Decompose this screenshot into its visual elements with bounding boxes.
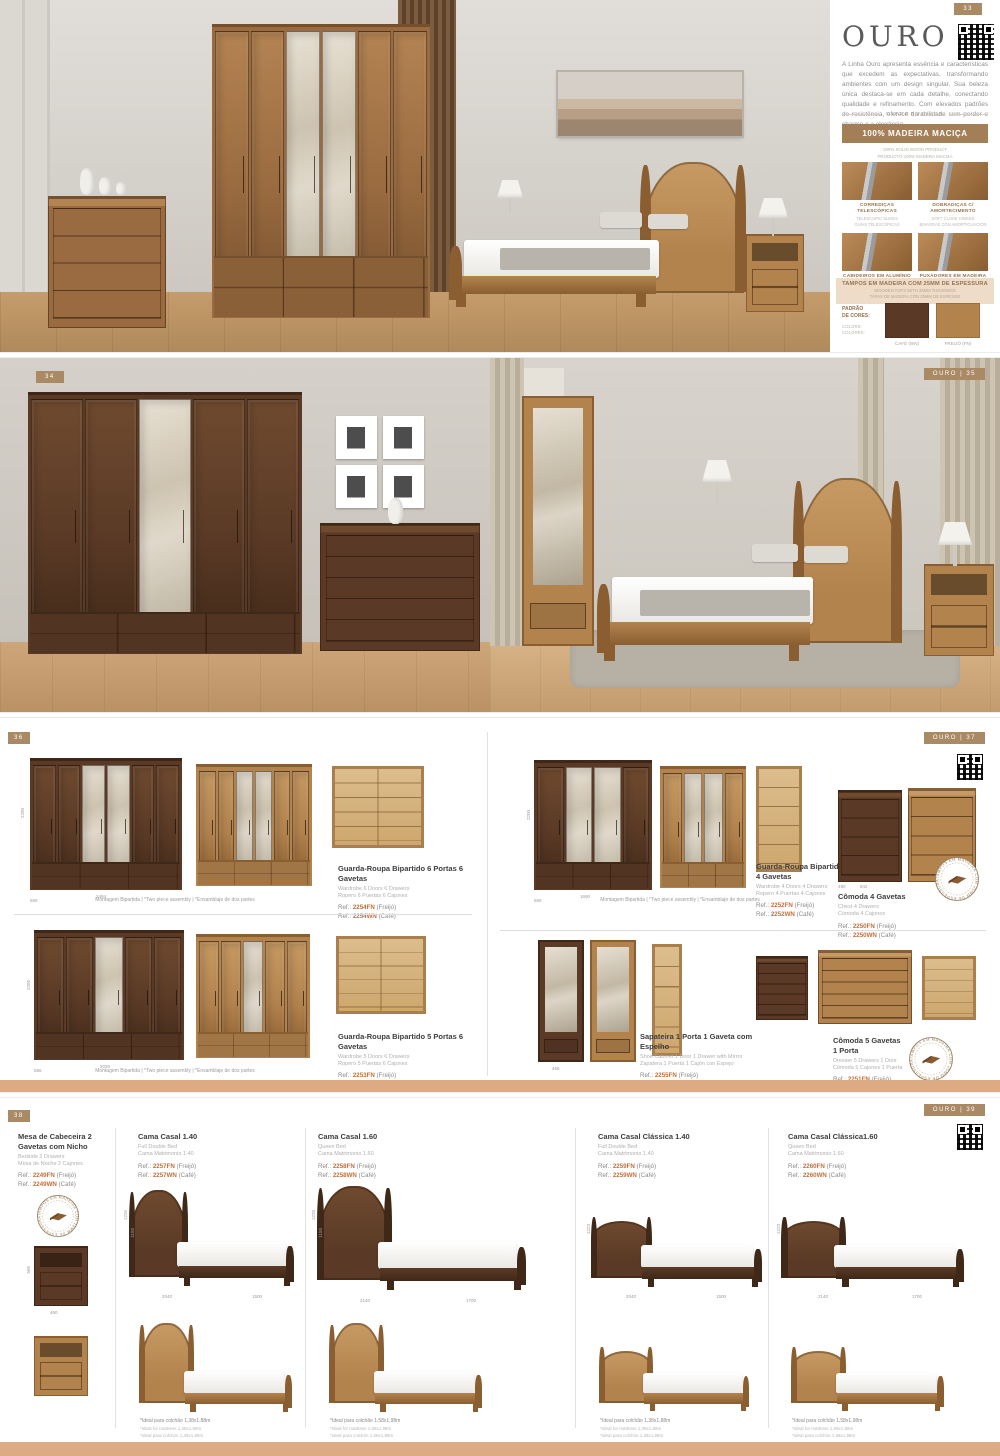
swatch-cafe-label: CAFÉ (WN) [885, 341, 929, 346]
dresser-5-drawer-freijo [818, 950, 912, 1024]
solid-wood-subtitle: 100% SOLID WOOD PRODUCTPRODUCTO 100% MAD… [842, 147, 988, 160]
mattress-footnote: *Ideal para colchão 1,38x1,88m *Ideal fo… [600, 1418, 670, 1439]
bedroom-photo-2 [0, 358, 490, 712]
dim-width: 1500 [716, 1294, 726, 1299]
product-card: Cômoda 4 Gavetas Chest 4 DrawersCómoda 4… [838, 892, 930, 941]
column-divider [768, 1128, 769, 1428]
dim-depth: 465 [552, 1066, 560, 1071]
bed-illustration [452, 162, 744, 312]
page-number-badge: 34 [36, 371, 64, 383]
swatch-cafe[interactable] [885, 303, 929, 338]
chest-of-drawers-illustration [48, 196, 166, 328]
swatch-freijo[interactable] [936, 303, 980, 338]
bed-160-cafe [318, 1186, 524, 1294]
dim-length: 2040 [626, 1294, 636, 1299]
dresser-interior-view [922, 956, 976, 1020]
dim-height: 1150 [130, 1228, 135, 1238]
dim-height: 1225 [311, 1210, 316, 1220]
color-pattern-label-intl: COLORS: COLORES: [842, 324, 865, 336]
dim-height: 1150 [318, 1228, 323, 1238]
dim-width: 1700 [912, 1294, 922, 1299]
wardrobe-5-door-freijo [196, 934, 310, 1058]
dim-width: 1700 [466, 1298, 476, 1303]
wardrobe-6-door-cafe [30, 758, 182, 890]
product-title: Cômoda 4 Gavetas [838, 892, 930, 902]
dim-height: 565 [26, 1266, 31, 1274]
column-divider [305, 1128, 306, 1428]
feature-photo [918, 162, 988, 200]
column-divider [115, 1128, 116, 1428]
vase [80, 168, 94, 195]
dim-length: 2140 [360, 1298, 370, 1303]
collection-description: A Linha Ouro apresenta essência e caract… [842, 60, 988, 129]
nightstand-illustration [746, 234, 804, 312]
bed-illustration [600, 478, 900, 668]
products-panel-wardrobes: 36 OURO | 37 2200 2494 555 Guarda-Roupa … [0, 718, 1000, 1092]
accent-strip [0, 1442, 1000, 1456]
product-title: Cama Casal 1.40 [138, 1132, 288, 1142]
bedroom-photo-1 [0, 0, 830, 352]
product-card: Cama Casal 1.60 Queen BedCama Matrimonio… [318, 1132, 478, 1181]
dim-length: 2040 [162, 1294, 172, 1299]
product-title: Guarda-Roupa Bipartido 5 Portas 6 Gaveta… [338, 1032, 470, 1052]
wainscot-wall [0, 0, 50, 292]
dim-width: 842 [860, 884, 868, 889]
shoe-cabinet-illustration [522, 396, 594, 646]
shoe-cabinet-freijo [590, 940, 636, 1062]
pillow [752, 544, 798, 562]
column-divider [575, 1128, 576, 1428]
bedroom-photo-3 [490, 358, 1000, 712]
shoe-cabinet-cafe [538, 940, 584, 1062]
dark-chest-illustration [320, 523, 480, 651]
wood-top-seal: TAMPOS EM MADEIRA COM 25MM DE ESPESSURA … [908, 1036, 954, 1082]
table-lamp [497, 180, 523, 214]
feature-photo [842, 233, 912, 271]
feature-soft-close-hinges: DOBRADIÇAS C/ AMORTECIMENTO SOFT CLOSE H… [918, 162, 988, 227]
nightstand-illustration [924, 564, 994, 656]
vase [99, 177, 111, 195]
bed-classic-160-freijo [792, 1328, 942, 1414]
page-number-badge: 36 [8, 732, 30, 744]
swatch-freijo-label: FREIJÓ (FN) [936, 341, 980, 346]
nightstand-cafe [34, 1246, 88, 1306]
dim-height: 2200 [26, 980, 31, 990]
bed-140-freijo [140, 1323, 290, 1415]
collection-title: OURO [842, 20, 949, 53]
wardrobe-interior-view [336, 936, 426, 1014]
dim-height: 1223 [776, 1224, 781, 1234]
qr-code[interactable] [958, 24, 994, 60]
vase [388, 498, 403, 524]
hero-panel: OURO A Linha Ouro apresenta essência e c… [0, 0, 1000, 352]
mattress-footnote: *Ideal para colchão 1,38x1,88m *Ideal fo… [140, 1418, 210, 1439]
solid-wood-banner: 100% MADEIRA MACIÇA [842, 124, 988, 143]
dim-height: 2200 [526, 810, 531, 820]
table-lamp [758, 198, 788, 236]
page-number-badge: OURO | 39 [924, 1104, 985, 1116]
mattress-footnote: *Ideal para colchão 1,58x1,98m *Ideal fo… [792, 1418, 862, 1439]
assembly-note: Montagem Bipartida | *Two piece assembly… [30, 897, 320, 903]
bed-classic-160-cafe [782, 1196, 962, 1290]
wardrobe-4-door-freijo [660, 766, 746, 888]
row-divider [500, 930, 986, 931]
accent-strip [0, 1080, 1000, 1092]
bed-160-freijo [330, 1323, 480, 1415]
wardrobe-4-door-cafe [534, 760, 652, 890]
product-title: Cama Casal Clássica1.60 [788, 1132, 958, 1142]
pillow [648, 214, 688, 229]
wardrobe-6-door-freijo [196, 764, 312, 886]
dim-depth: 490 [838, 884, 846, 889]
dim-width: 460 [50, 1310, 58, 1315]
differentials-divider: DIFERENCIAIS [842, 112, 988, 117]
bed-classic-140-freijo [600, 1328, 748, 1414]
wardrobe-interior-view [756, 766, 802, 872]
bed-throw [640, 590, 810, 616]
product-title: Mesa de Cabeceira 2 Gavetas com Nicho [18, 1132, 110, 1152]
table-lamp [938, 522, 972, 566]
vase [116, 182, 126, 195]
nightstand-freijo [34, 1336, 88, 1396]
wardrobe-5-door-cafe [34, 930, 184, 1060]
assembly-note: Montagem Bipartida | *Two piece assembly… [530, 897, 830, 903]
wardrobe-interior-view [332, 766, 424, 848]
column-divider [487, 732, 488, 1076]
page-number-badge: OURO | 37 [924, 732, 985, 744]
dim-height: 1225 [123, 1210, 128, 1220]
bed-classic-140-cafe [592, 1196, 760, 1290]
chest-4-drawers-cafe [838, 790, 902, 882]
pillow [804, 546, 848, 563]
pillow [600, 212, 642, 228]
color-pattern-label: PADRÃO DE CORES: [842, 306, 870, 320]
sidebar: OURO A Linha Ouro apresenta essência e c… [830, 0, 1000, 352]
dim-height: 1223 [586, 1224, 591, 1234]
dresser-5-drawer-cafe [756, 956, 808, 1020]
product-title: Guarda-Roupa Bipartido 6 Portas 6 Gaveta… [338, 864, 470, 884]
dim-height: 2200 [20, 808, 25, 818]
wood-top-seal: TAMPOS EM MADEIRA COM 25MM DE ESPESSURA … [36, 1194, 80, 1238]
bed-140-cafe [130, 1190, 292, 1290]
wood-tops-banner: TAMPOS EM MADEIRA COM 25MM DE ESPESSURA … [836, 278, 994, 304]
wardrobe-illustration [212, 24, 430, 318]
photo-panel-2: 34 OURO | 35 [0, 358, 1000, 712]
curtain-left [490, 358, 524, 658]
qr-code[interactable] [957, 1124, 983, 1150]
product-title: Sapateira 1 Porta 1 Gaveta com Espelho [640, 1032, 780, 1052]
product-title: Cama Casal Clássica 1.40 [598, 1132, 748, 1142]
products-panel-beds: 38 OURO | 39 Mesa de Cabeceira 2 Gavetas… [0, 1098, 1000, 1456]
dim-width: 1500 [252, 1294, 262, 1299]
feature-photo [842, 162, 912, 200]
dark-wardrobe-illustration [28, 392, 302, 654]
assembly-note: Montagem Bipartida | *Two piece assembly… [30, 1068, 320, 1074]
page-number-badge: 38 [8, 1110, 30, 1122]
feature-telescopic-slides: CORREDIÇAS TELESCÓPICAS TELESCOPIC SLIDE… [842, 162, 912, 227]
product-title: Cômoda 5 Gavetas 1 Porta [833, 1036, 903, 1056]
dim-length: 2140 [818, 1294, 828, 1299]
bed-throw [500, 248, 650, 270]
mattress-footnote: *Ideal para colchão 1,58x1,98m *Ideal fo… [330, 1418, 400, 1439]
page-number-badge: 33 [954, 3, 982, 15]
gallery-frames [336, 416, 424, 508]
product-title: Cama Casal 1.60 [318, 1132, 478, 1142]
catalog-page: { "badges":{"p1":"33","p2l":"34","p2r":"… [0, 0, 1000, 1456]
product-card: Cama Casal Clássica1.60 Queen BedCama Ma… [788, 1132, 958, 1181]
row-divider [14, 914, 472, 915]
wood-top-seal: TAMPOS EM MADEIRA COM 25MM DE ESPESSURA … [934, 856, 980, 902]
qr-code[interactable] [957, 754, 983, 780]
product-card: Cama Casal 1.40 Full Double BedCama Matr… [138, 1132, 288, 1181]
product-card: Cama Casal Clássica 1.40 Full Double Bed… [598, 1132, 748, 1181]
page-number-badge: OURO | 35 [924, 368, 985, 380]
product-card: Mesa de Cabeceira 2 Gavetas com Nicho Be… [18, 1132, 110, 1190]
wall-art [558, 72, 742, 136]
feature-photo [918, 233, 988, 271]
